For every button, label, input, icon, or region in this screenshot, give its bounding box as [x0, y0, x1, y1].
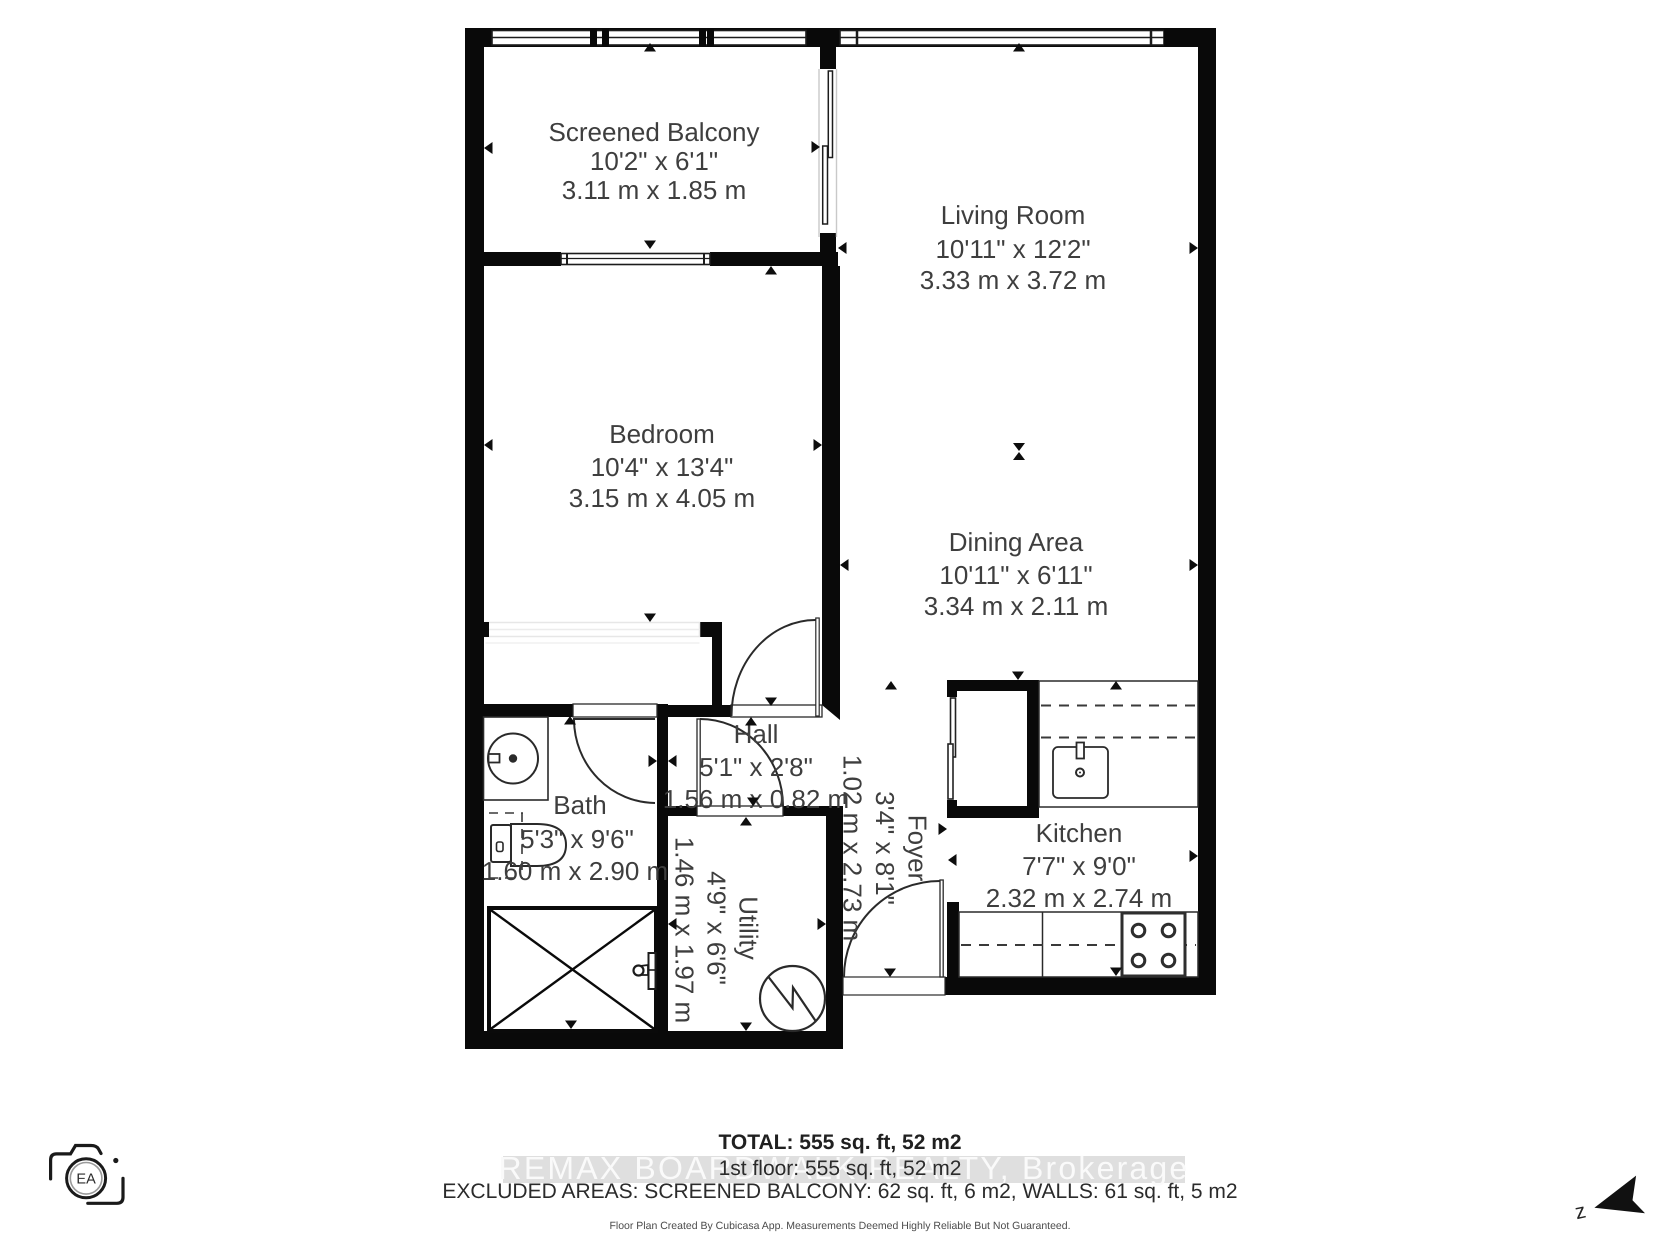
svg-text:3'4" x 8'1": 3'4" x 8'1" — [870, 791, 900, 905]
svg-text:Bath: Bath — [553, 790, 607, 820]
svg-text:3.34 m x 2.11 m: 3.34 m x 2.11 m — [924, 591, 1109, 621]
svg-text:Hall: Hall — [734, 719, 779, 749]
svg-text:Foyer: Foyer — [903, 815, 933, 882]
svg-text:Screened Balcony: Screened Balcony — [548, 117, 759, 147]
svg-text:Floor Plan Created By Cubicasa: Floor Plan Created By Cubicasa App. Meas… — [609, 1220, 1070, 1232]
svg-text:1st floor: 555 sq. ft, 52 m2: 1st floor: 555 sq. ft, 52 m2 — [719, 1157, 962, 1180]
svg-text:Kitchen: Kitchen — [1036, 818, 1123, 848]
svg-text:1.46 m x 1.97 m: 1.46 m x 1.97 m — [670, 837, 700, 1023]
svg-text:EXCLUDED AREAS: SCREENED BALCO: EXCLUDED AREAS: SCREENED BALCONY: 62 sq.… — [442, 1180, 1237, 1203]
svg-text:3.11 m x 1.85 m: 3.11 m x 1.85 m — [562, 175, 747, 205]
svg-text:5'3" x 9'6": 5'3" x 9'6" — [520, 824, 634, 854]
svg-text:TOTAL: 555 sq. ft, 52 m2: TOTAL: 555 sq. ft, 52 m2 — [718, 1131, 961, 1154]
svg-text:Bedroom: Bedroom — [609, 419, 715, 449]
svg-text:10'2" x 6'1": 10'2" x 6'1" — [590, 146, 718, 176]
svg-text:1.60 m x 2.90 m: 1.60 m x 2.90 m — [482, 856, 668, 886]
svg-text:Living Room: Living Room — [941, 200, 1086, 230]
svg-text:10'4" x 13'4": 10'4" x 13'4" — [591, 452, 734, 482]
svg-text:2.32 m x 2.74 m: 2.32 m x 2.74 m — [986, 883, 1172, 913]
svg-text:4'9" x 6'6": 4'9" x 6'6" — [702, 871, 732, 985]
svg-text:10'11" x 12'2": 10'11" x 12'2" — [935, 234, 1090, 264]
svg-text:7'7" x 9'0": 7'7" x 9'0" — [1022, 851, 1136, 881]
svg-text:3.33 m x 3.72 m: 3.33 m x 3.72 m — [920, 265, 1106, 295]
svg-text:5'1" x 2'8": 5'1" x 2'8" — [699, 752, 813, 782]
svg-text:Dining Area: Dining Area — [949, 527, 1084, 557]
svg-text:Utility: Utility — [734, 896, 764, 960]
svg-text:10'11" x 6'11": 10'11" x 6'11" — [939, 560, 1092, 590]
svg-text:1.02 m x 2.73 m: 1.02 m x 2.73 m — [838, 755, 868, 941]
svg-text:EA: EA — [76, 1172, 96, 1188]
svg-text:3.15 m x 4.05 m: 3.15 m x 4.05 m — [569, 483, 755, 513]
